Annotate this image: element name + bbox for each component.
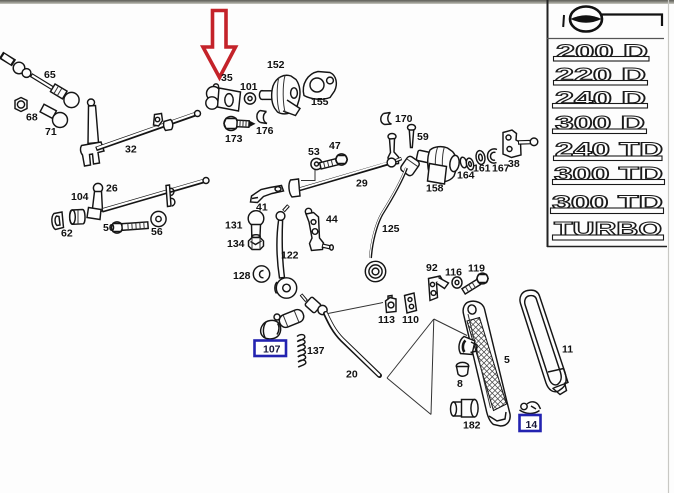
svg-text:59: 59 — [417, 131, 429, 143]
svg-text:26: 26 — [106, 183, 118, 195]
svg-text:113: 113 — [378, 314, 395, 326]
svg-text:119: 119 — [468, 263, 485, 275]
svg-text:20: 20 — [346, 369, 358, 381]
svg-text:176: 176 — [256, 125, 274, 137]
svg-text:158: 158 — [426, 183, 444, 195]
svg-text:35: 35 — [221, 72, 233, 84]
svg-text:92: 92 — [426, 262, 438, 274]
svg-text:152: 152 — [267, 59, 285, 71]
svg-text:125: 125 — [382, 223, 400, 235]
svg-text:11: 11 — [562, 344, 573, 356]
svg-text:62: 62 — [61, 228, 73, 240]
svg-text:56: 56 — [151, 226, 163, 238]
svg-text:173: 173 — [225, 133, 243, 145]
svg-text:50: 50 — [103, 222, 115, 234]
svg-text:104: 104 — [71, 191, 89, 203]
svg-text:8: 8 — [457, 378, 463, 390]
svg-text:44: 44 — [326, 214, 338, 226]
svg-text:47: 47 — [329, 140, 341, 152]
svg-text:170: 170 — [395, 113, 413, 125]
svg-text:134: 134 — [227, 238, 245, 250]
svg-text:131: 131 — [225, 220, 243, 232]
svg-text:38: 38 — [508, 158, 520, 170]
svg-text:161: 161 — [473, 163, 491, 175]
svg-text:107: 107 — [263, 344, 281, 356]
svg-text:53: 53 — [308, 146, 320, 158]
svg-text:128: 128 — [233, 270, 251, 282]
svg-text:68: 68 — [26, 112, 38, 124]
svg-text:14: 14 — [526, 419, 538, 431]
svg-text:5: 5 — [504, 354, 510, 366]
svg-text:29: 29 — [356, 178, 368, 190]
svg-text:116: 116 — [445, 267, 462, 279]
svg-text:122: 122 — [281, 250, 299, 262]
svg-text:110: 110 — [402, 314, 419, 326]
svg-text:32: 32 — [125, 144, 137, 156]
svg-text:155: 155 — [311, 96, 329, 108]
svg-text:71: 71 — [45, 126, 57, 138]
svg-text:137: 137 — [307, 345, 325, 357]
svg-text:65: 65 — [44, 69, 56, 81]
svg-text:101: 101 — [240, 81, 258, 93]
svg-text:182: 182 — [463, 420, 481, 432]
